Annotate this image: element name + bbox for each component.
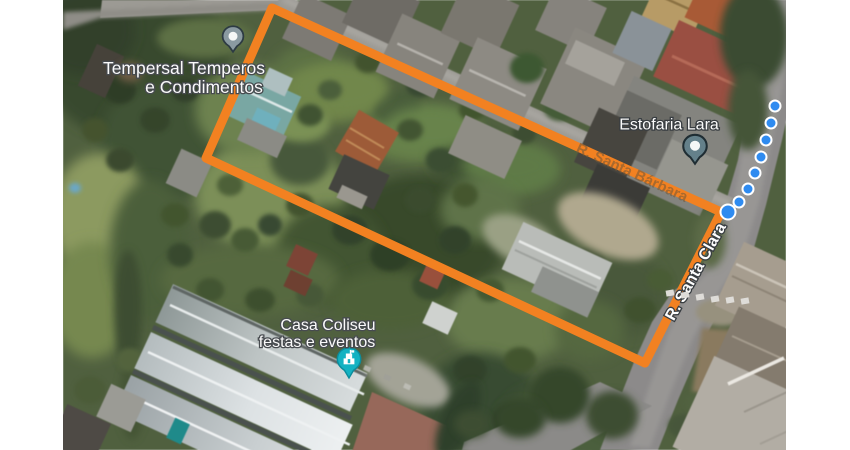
svg-text:e Condimentos: e Condimentos bbox=[145, 77, 263, 97]
svg-text:Casa Coliseu: Casa Coliseu bbox=[280, 317, 375, 334]
svg-text:festas e eventos: festas e eventos bbox=[259, 334, 376, 351]
svg-text:Tempersal Temperos: Tempersal Temperos bbox=[103, 58, 265, 78]
svg-text:Estofaria Lara: Estofaria Lara bbox=[619, 117, 719, 134]
